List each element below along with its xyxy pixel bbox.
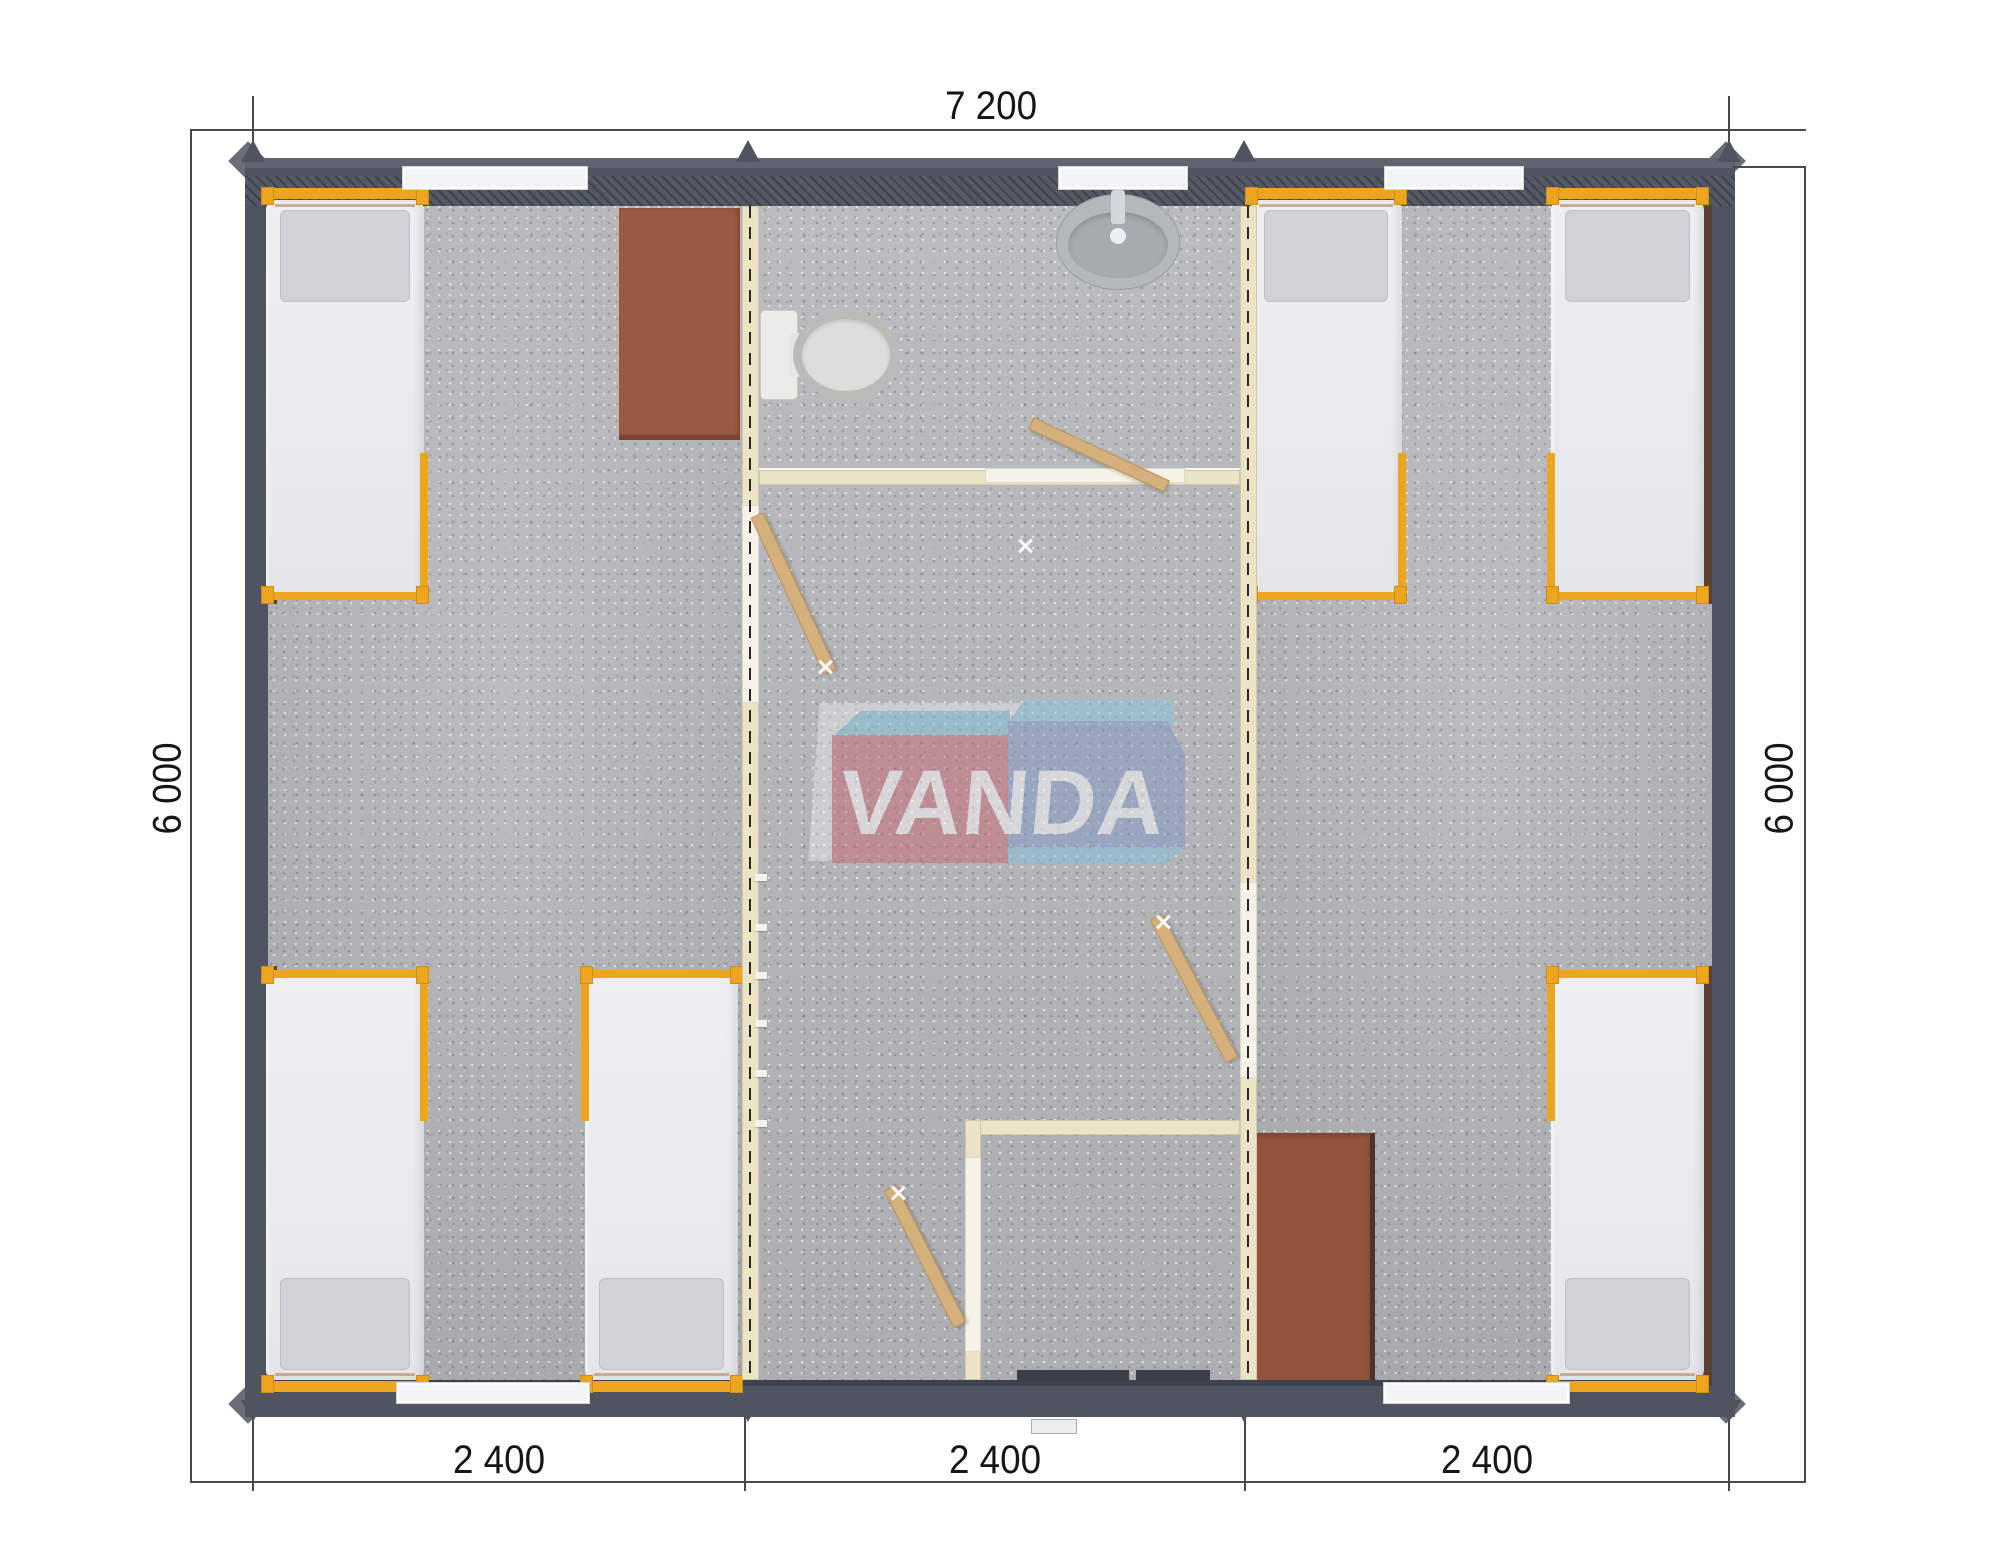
desk — [1243, 1133, 1375, 1380]
bed-frame-head-rail — [1247, 188, 1405, 199]
window — [396, 1382, 590, 1404]
wall-liner — [1703, 966, 1712, 1380]
coat-hook — [755, 1020, 767, 1027]
bed-pillow — [280, 210, 410, 302]
faucet-knob — [1110, 228, 1126, 244]
bed-head-edge — [1259, 204, 1393, 207]
bed-frame-corner — [1696, 966, 1709, 984]
toilet-bowl — [793, 311, 899, 399]
coat-hook — [755, 924, 767, 931]
bed-frame-corner — [1696, 187, 1709, 205]
bed-pillow — [280, 1278, 410, 1370]
coat-hook — [755, 1070, 767, 1077]
bed-pillow — [1264, 210, 1388, 302]
bed-frame-corner — [416, 586, 429, 604]
bed-frame-corner — [261, 1375, 274, 1393]
door-handle-mark — [1154, 913, 1172, 931]
bed-pillow — [599, 1278, 724, 1370]
bed-frame-side-rail — [1547, 453, 1555, 602]
module-joint-dashed-line — [749, 206, 751, 1380]
bed-frame-corner — [1245, 187, 1258, 205]
entrance-door-panel — [1017, 1370, 1129, 1381]
bed-frame-foot-rail — [1548, 592, 1707, 600]
toilet-seat — [802, 319, 890, 391]
bed-head-edge — [275, 204, 415, 207]
door-handle-mark — [816, 658, 834, 676]
dimension-arrow — [1717, 140, 1741, 162]
bed-frame-corner — [1546, 586, 1559, 604]
coat-hook — [755, 1120, 767, 1127]
wall-liner — [1703, 206, 1712, 604]
extension-line — [1733, 166, 1805, 168]
bed-frame-side-rail — [420, 968, 428, 1121]
extension-line — [252, 1417, 254, 1491]
entrance-step — [1031, 1419, 1077, 1434]
dimension-line-right — [1804, 166, 1806, 1483]
bed-frame-side-rail — [1398, 453, 1406, 602]
bed-frame-head-rail — [1548, 188, 1707, 199]
floor-carpet — [268, 206, 1712, 1380]
bed-frame-corner — [1546, 187, 1559, 205]
bed-frame-corner — [580, 966, 593, 984]
bed-frame-head-rail — [582, 1381, 741, 1392]
bed-frame-corner — [416, 966, 429, 984]
bed-head-edge — [594, 1373, 729, 1376]
dimension-arrow — [241, 1400, 265, 1422]
dimension-label-top: 7 200 — [899, 84, 1083, 129]
dimension-label-bottom-1: 2 400 — [407, 1438, 591, 1483]
bed-frame-head-rail — [1548, 1381, 1707, 1392]
bed — [1551, 968, 1704, 1392]
bed-frame-foot-rail — [263, 970, 427, 978]
bed-frame-corner — [261, 966, 274, 984]
bed-pillow — [1565, 1278, 1690, 1370]
faucet — [1111, 190, 1125, 224]
entrance-door-panel — [1136, 1370, 1210, 1381]
bed-frame-foot-rail — [1247, 592, 1405, 600]
bed-head-edge — [1560, 1373, 1695, 1376]
extension-line — [1728, 1417, 1730, 1491]
dimension-arrow — [241, 140, 265, 162]
bed-frame-foot-rail — [582, 970, 741, 978]
dimension-arrow — [1717, 1400, 1741, 1422]
bed-frame-corner — [261, 187, 274, 205]
bed-head-edge — [1560, 204, 1695, 207]
bed-frame-foot-rail — [263, 592, 427, 600]
bed-frame-side-rail — [1547, 968, 1555, 1121]
module-joint-dashed-line — [1247, 206, 1249, 1380]
dimension-arrow — [1232, 140, 1256, 162]
bed-frame-side-rail — [420, 453, 428, 602]
bed-frame-foot-rail — [1548, 970, 1707, 978]
window — [1383, 1382, 1570, 1404]
extension-line — [1244, 1417, 1246, 1491]
coat-hook — [755, 972, 767, 979]
bed-head-edge — [275, 1373, 415, 1376]
desk — [619, 208, 740, 440]
bed-frame-corner — [1394, 586, 1407, 604]
bed — [585, 968, 738, 1392]
dimension-label-bottom-3: 2 400 — [1395, 1438, 1579, 1483]
door-handle-mark — [1016, 537, 1034, 555]
window — [1384, 166, 1524, 190]
dimension-label-right: 6 000 — [1758, 697, 1803, 881]
door-handle-mark — [889, 1184, 907, 1202]
dimension-label-bottom-2: 2 400 — [903, 1438, 1087, 1483]
bed-pillow — [1565, 210, 1690, 302]
bed-frame-corner — [1696, 1375, 1709, 1393]
window — [1058, 166, 1188, 190]
bed — [266, 968, 424, 1392]
dimension-line-top — [190, 129, 1806, 131]
bed — [1551, 188, 1704, 602]
coat-hook — [755, 874, 767, 881]
bed-frame-corner — [261, 586, 274, 604]
bed — [1250, 188, 1402, 602]
bed-frame-side-rail — [581, 968, 589, 1121]
dimension-arrow — [736, 1400, 760, 1422]
bed-frame-corner — [1696, 586, 1709, 604]
door-opening-vestibule — [965, 1157, 981, 1352]
floor-plan-canvas: VANDA — [0, 0, 2000, 1566]
window — [402, 166, 588, 190]
dimension-label-left: 6 000 — [146, 697, 191, 881]
bed-frame-corner — [1546, 966, 1559, 984]
dimension-arrow — [1232, 1400, 1256, 1422]
vestibule-wall-top — [965, 1120, 1240, 1135]
dimension-arrow — [736, 140, 760, 162]
bed — [266, 188, 424, 602]
extension-line — [744, 1417, 746, 1491]
